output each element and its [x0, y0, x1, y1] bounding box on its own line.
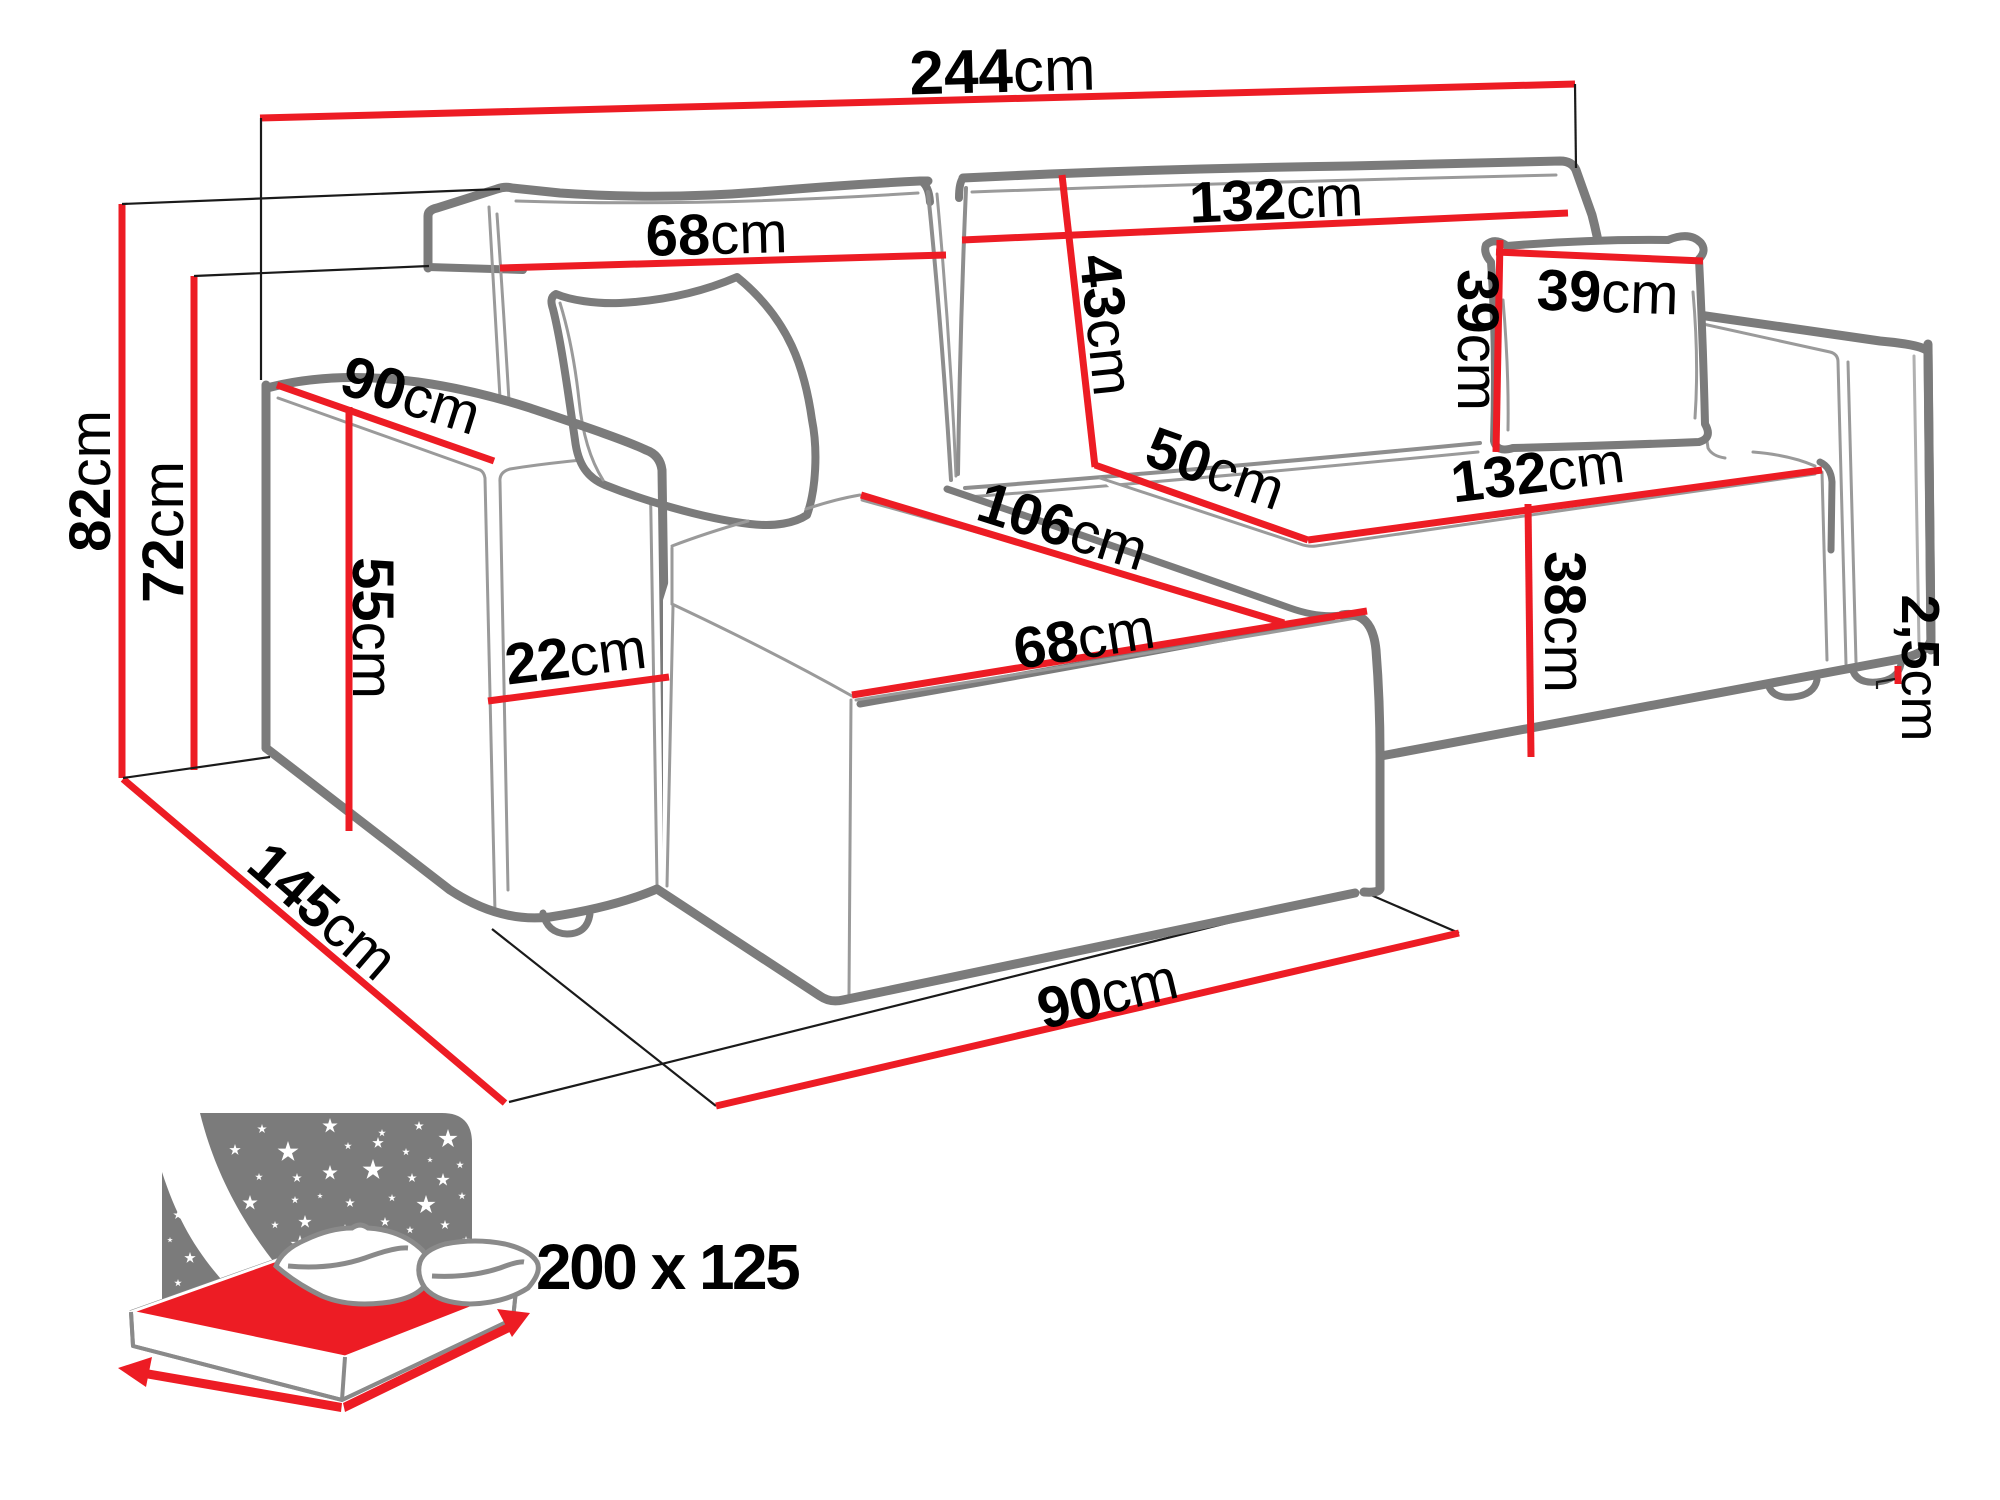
svg-text:68cm: 68cm [645, 200, 788, 269]
svg-text:82cm: 82cm [58, 410, 123, 552]
svg-text:132cm: 132cm [1188, 163, 1365, 236]
svg-text:72cm: 72cm [131, 461, 196, 603]
svg-text:2,5cm: 2,5cm [1890, 594, 1950, 741]
svg-text:39cm: 39cm [1536, 258, 1680, 328]
svg-text:200 x 125: 200 x 125 [536, 1231, 799, 1303]
svg-text:39cm: 39cm [1445, 269, 1510, 411]
svg-text:55cm: 55cm [340, 557, 405, 699]
svg-text:38cm: 38cm [1532, 551, 1597, 693]
svg-text:244cm: 244cm [909, 35, 1097, 109]
